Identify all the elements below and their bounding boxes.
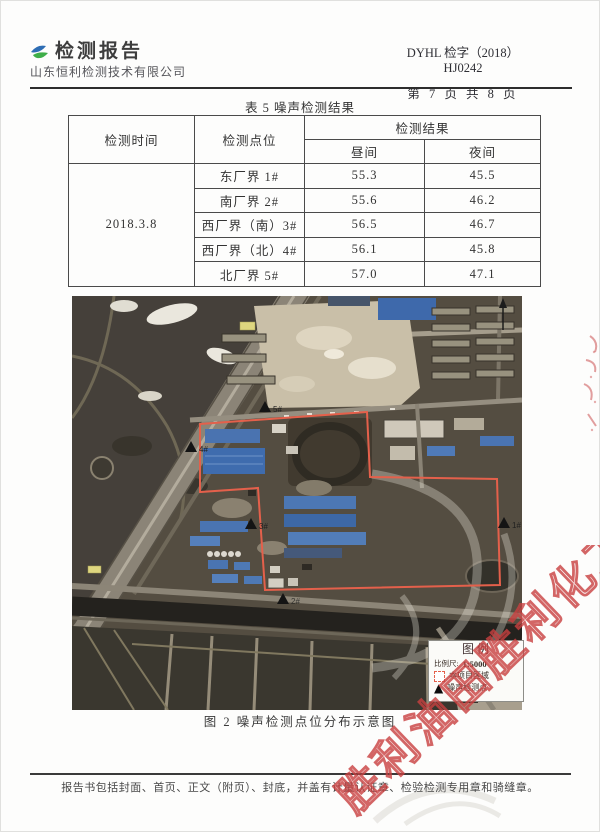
table-title: 表 5 噪声检测结果 [0, 97, 600, 116]
day-value-cell: 56.1 [305, 237, 425, 262]
edge-seal-fragment-icon [570, 322, 600, 447]
company-name: 山东恒利检测技术有限公司 [30, 63, 186, 80]
point-cell: 西厂界（南）3# [195, 213, 305, 238]
header-right-block: DYHL 检字（2018）HJ0242 第 7 页 共 8 页 [388, 42, 538, 102]
day-value-cell: 56.5 [305, 213, 425, 238]
company-logo-icon [29, 43, 53, 61]
night-value-cell: 45.8 [425, 237, 541, 262]
point-cell: 西厂界（北）4# [195, 237, 305, 262]
night-value-cell: 45.5 [425, 164, 541, 189]
document-title: 检测报告 [55, 36, 143, 63]
point-label: 3# [259, 522, 268, 531]
scale-value: 1:5000 [463, 659, 487, 670]
date-cell: 2018.3.8 [69, 164, 195, 287]
day-value-cell: 57.0 [305, 262, 425, 287]
col-header-day: 昼间 [305, 140, 425, 164]
point-cell: 东厂界 1# [195, 164, 305, 189]
table-row: 2018.3.8 东厂界 1# 55.3 45.5 [69, 164, 541, 189]
night-value-cell: 46.7 [425, 213, 541, 238]
point-label: 2# [291, 597, 300, 606]
night-value-cell: 46.2 [425, 188, 541, 213]
report-number: DYHL 检字（2018）HJ0242 [388, 42, 538, 76]
header-divider [30, 87, 572, 89]
footer-note: 报告书包括封面、首页、正文（附页）、封底，并盖有计量认证章、检验检测专用章和骑缝… [0, 779, 600, 795]
scale-label: 比例尺: [434, 659, 459, 669]
footer-divider [30, 773, 571, 775]
legend-title: 图例 [434, 642, 520, 658]
noise-point-swatch-icon: ▲ [434, 683, 443, 693]
figure-caption: 图 2 噪声检测点位分布示意图 [0, 711, 600, 730]
point-label: 4# [199, 445, 208, 454]
col-header-point: 检测点位 [195, 116, 305, 164]
day-value-cell: 55.6 [305, 188, 425, 213]
point-label: 5# [273, 405, 282, 414]
project-area-swatch-icon [434, 671, 445, 682]
col-header-night: 夜间 [425, 140, 541, 164]
map-legend: 图例 比例尺: 1:5000 本项目区域 ▲ 噪声检测点 [428, 640, 524, 702]
col-header-time: 检测时间 [69, 116, 195, 164]
gray-swirl-watermark-icon [360, 766, 510, 826]
col-header-result: 检测结果 [305, 116, 541, 140]
satellite-map: 5# 4# 3# 1# 2# 图例 比例尺: 1:5000 本项目区域 ▲ 噪声… [72, 296, 522, 710]
night-value-cell: 47.1 [425, 262, 541, 287]
point-label: 1# [512, 521, 521, 530]
legend-area-label: 本项目区域 [449, 671, 489, 681]
noise-result-table: 检测时间 检测点位 检测结果 昼间 夜间 2018.3.8 东厂界 1# 55.… [68, 115, 541, 287]
legend-point-label: 噪声检测点 [447, 683, 487, 693]
point-cell: 北厂界 5# [195, 262, 305, 287]
report-page: 检测报告 山东恒利检测技术有限公司 DYHL 检字（2018）HJ0242 第 … [0, 0, 600, 832]
point-cell: 南厂界 2# [195, 188, 305, 213]
day-value-cell: 55.3 [305, 164, 425, 189]
